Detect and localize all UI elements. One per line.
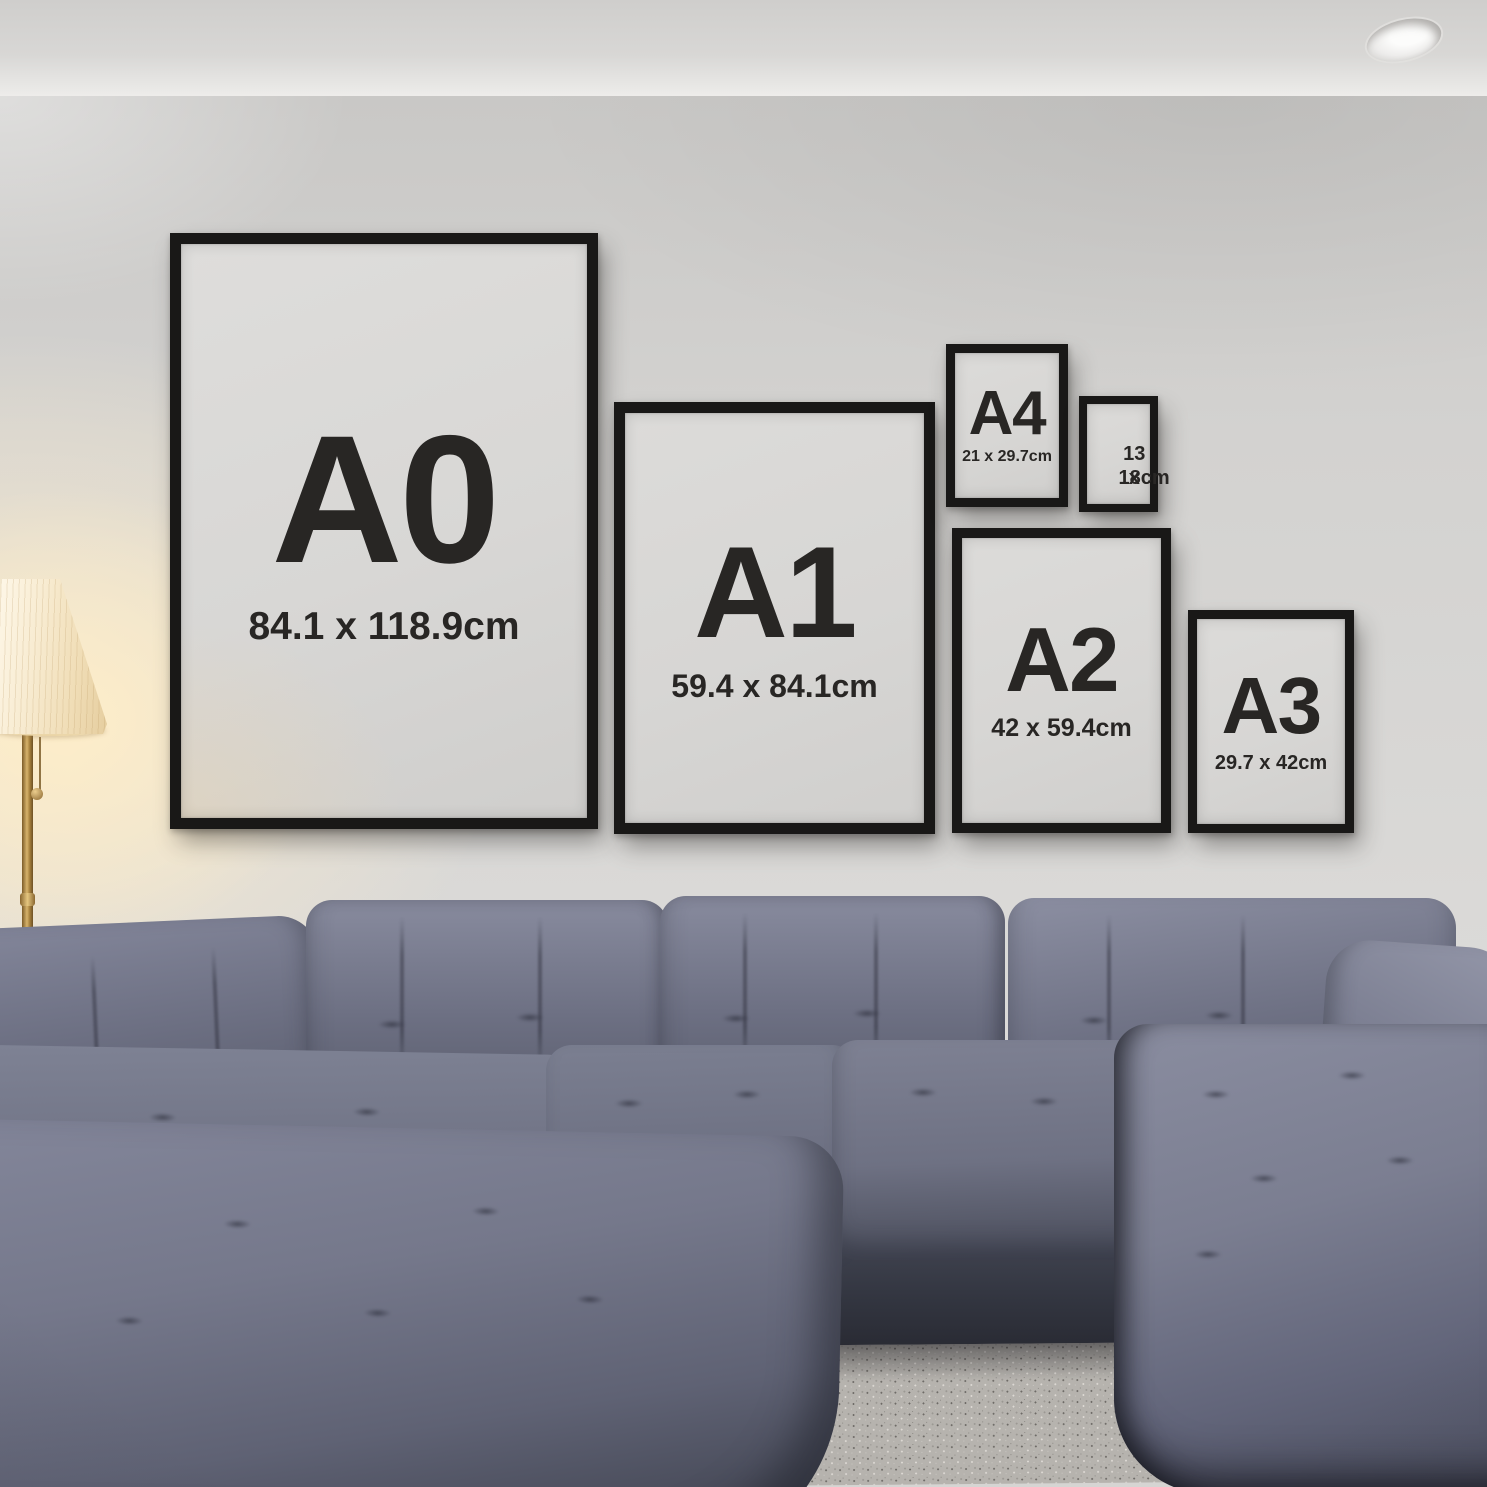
- living-room-scene: A0 84.1 x 118.9cm A1 59.4 x 84.1cm A4 21…: [0, 0, 1487, 1487]
- sofa-right-arm-cushion: [1316, 937, 1487, 1140]
- tuft-dimple: [1030, 1097, 1058, 1106]
- tuft-dimple: [909, 1088, 937, 1097]
- tuft-dimple: [1080, 1016, 1108, 1025]
- tuft-dimple: [733, 1090, 761, 1099]
- sofa-seat-cushion: [546, 1045, 858, 1270]
- shag-rug: [52, 1339, 1487, 1487]
- sofa-seat-cushion: [832, 1040, 1152, 1260]
- cushion-crease: [538, 917, 542, 1070]
- cushion-crease: [743, 913, 747, 1066]
- tuft-dimple: [615, 1099, 643, 1108]
- tuft-dimple: [1205, 1011, 1233, 1020]
- tuft-dimple: [671, 1169, 699, 1178]
- tuft-dimple: [378, 1020, 406, 1029]
- tuft-dimple: [722, 1014, 750, 1023]
- cushion-crease: [1241, 915, 1245, 1065]
- sectional-sofa: [0, 0, 1487, 1487]
- sofa-seat-cushion: [0, 1045, 582, 1270]
- tuft-dimple: [149, 1112, 177, 1121]
- tuft-dimple: [353, 1107, 381, 1116]
- cushion-crease: [400, 917, 404, 1070]
